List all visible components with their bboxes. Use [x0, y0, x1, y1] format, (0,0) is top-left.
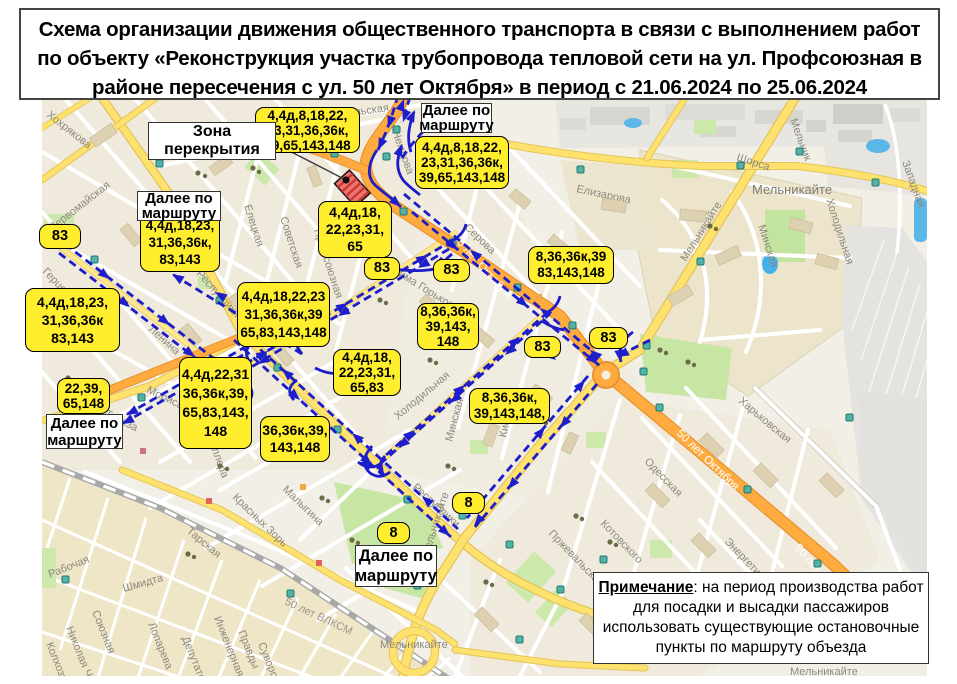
svg-text:Мельникайте: Мельникайте: [752, 182, 832, 197]
svg-text:Мельникайте: Мельникайте: [380, 639, 448, 651]
svg-text:Мельникайте: Мельникайте: [790, 666, 858, 676]
